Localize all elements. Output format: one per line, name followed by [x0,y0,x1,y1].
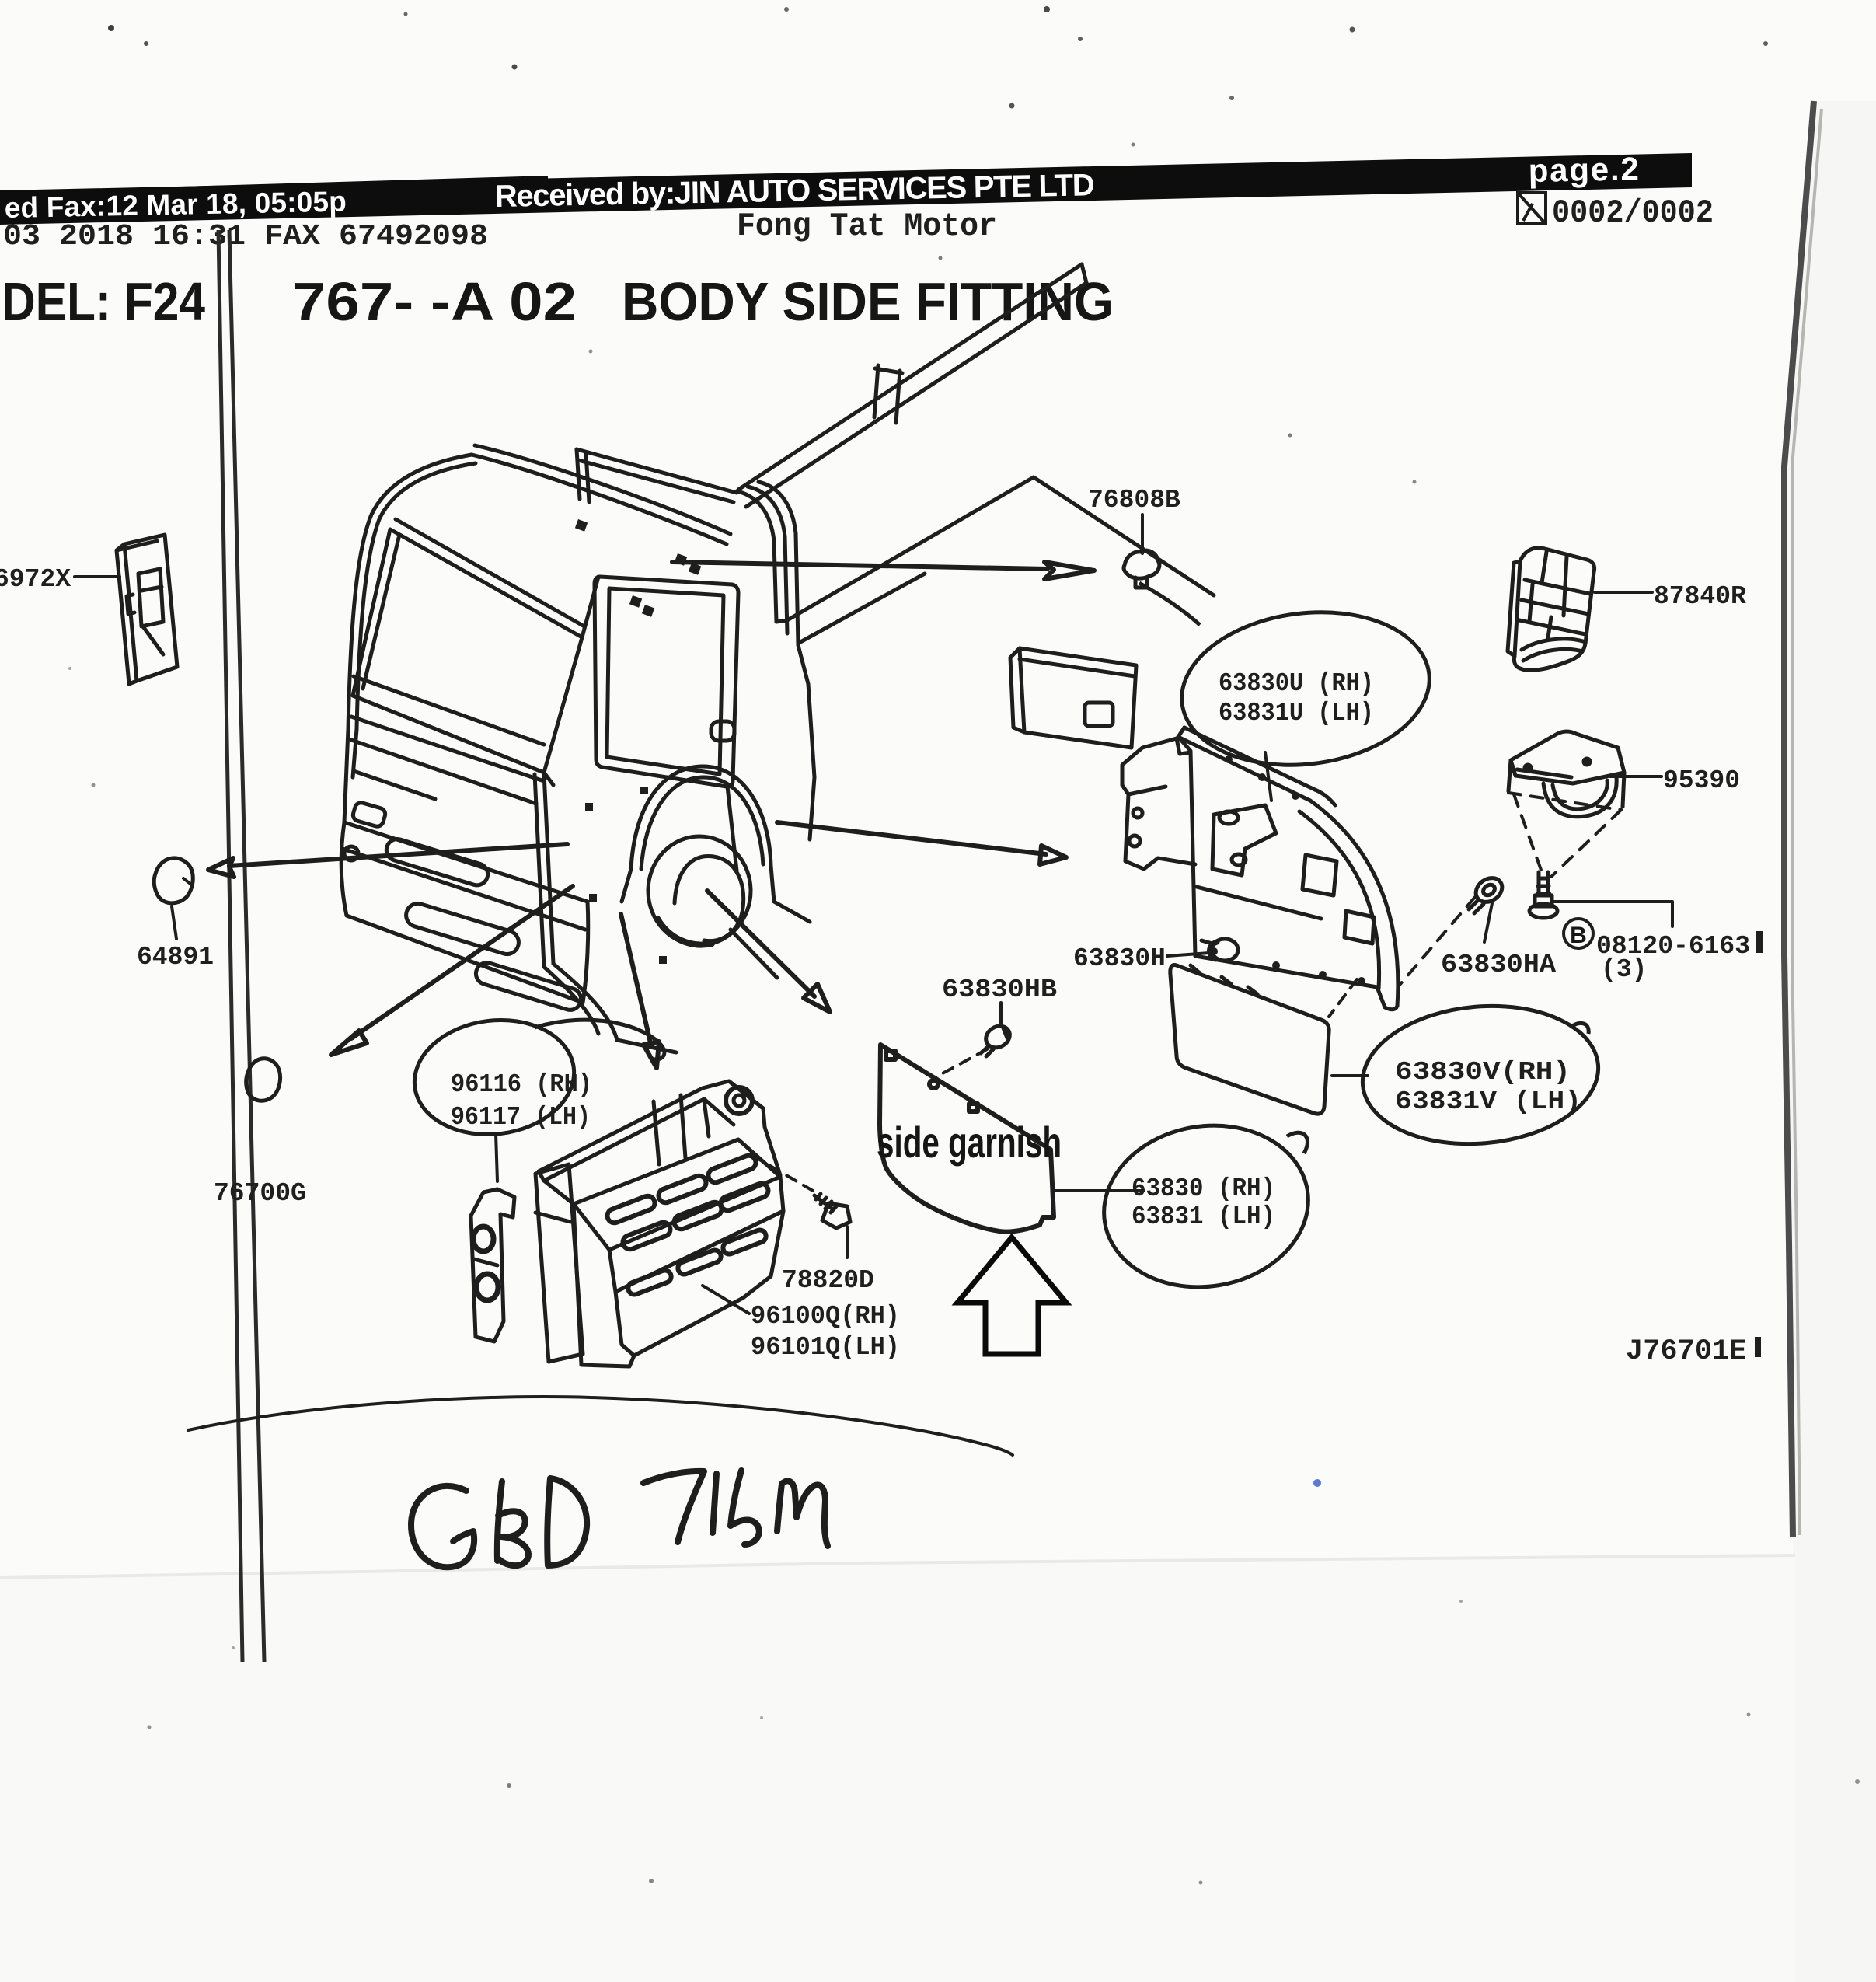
svg-text:87840R: 87840R [1654,582,1746,611]
svg-text:63830U (RH): 63830U (RH) [1219,669,1374,698]
svg-text:side garnish: side garnish [877,1118,1062,1167]
svg-text:96116 (RH): 96116 (RH) [451,1070,592,1099]
svg-text:(3): (3) [1601,955,1647,984]
svg-text:63830H: 63830H [1073,944,1166,973]
svg-text:03 2018 16:31 FAX 67492098: 03 2018 16:31 FAX 67492098 [3,220,488,253]
svg-text:96101Q(LH): 96101Q(LH) [751,1333,900,1362]
svg-text:0002/0002: 0002/0002 [1552,194,1714,232]
svg-text:63830HA: 63830HA [1441,951,1556,979]
svg-text:63831 (LH): 63831 (LH) [1132,1202,1275,1231]
svg-text:96100Q(RH): 96100Q(RH) [751,1302,900,1331]
svg-text:63831U (LH): 63831U (LH) [1219,699,1374,728]
svg-text:76808B: 76808B [1088,486,1180,515]
svg-text:63830 (RH): 63830 (RH) [1132,1174,1275,1203]
svg-text:ed Fax:12 Mar 18, 05:05p: ed Fax:12 Mar 18, 05:05p [4,186,347,224]
svg-text:B: B [1570,923,1587,948]
svg-text:DEL: F24: DEL: F24 [2,271,205,332]
svg-text:Fong Tat Motor: Fong Tat Motor [737,208,997,245]
svg-text:63831V (LH): 63831V (LH) [1395,1087,1581,1116]
svg-text:767- -A 02: 767- -A 02 [292,271,577,332]
svg-text:63830HB: 63830HB [942,975,1057,1004]
svg-text:6972X: 6972X [0,565,71,594]
svg-text:64891: 64891 [137,943,214,972]
svg-text:96117 (LH): 96117 (LH) [451,1103,591,1132]
svg-text:63830V(RH): 63830V(RH) [1395,1058,1571,1087]
svg-text:BODY SIDE FITTING: BODY SIDE FITTING [622,271,1114,332]
svg-text:page.2: page.2 [1528,150,1639,189]
svg-text:78820D: 78820D [782,1266,874,1295]
svg-text:95390: 95390 [1663,766,1740,795]
svg-text:J76701E: J76701E [1626,1335,1746,1368]
svg-text:76700G: 76700G [214,1179,306,1208]
